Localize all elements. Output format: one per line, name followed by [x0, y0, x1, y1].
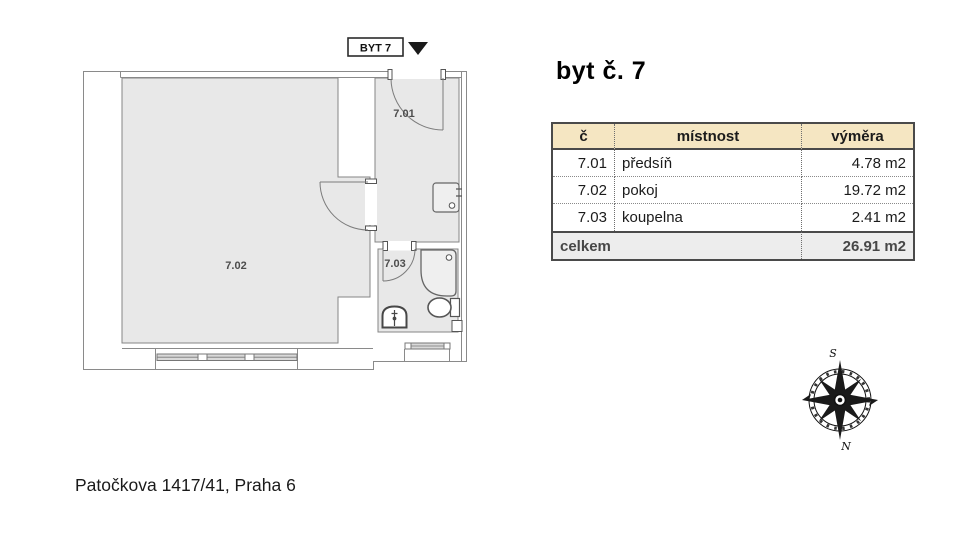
table-total-row: celkem 26.91 m2 [553, 231, 913, 259]
total-area: 26.91 m2 [802, 231, 913, 259]
page-title: byt č. 7 [556, 57, 646, 86]
cell-room-name: předsíň [615, 150, 802, 177]
room-predsin [375, 78, 459, 242]
cell-room-number: 7.02 [553, 177, 615, 204]
cell-room-number: 7.03 [553, 204, 615, 231]
table-row: 7.01 předsíň 4.78 m2 [553, 150, 913, 177]
cell-room-name: koupelna [615, 204, 802, 231]
room-label-702: 7.02 [225, 260, 246, 272]
address-text: Patočkova 1417/41, Praha 6 [75, 475, 296, 496]
flat-marker-triangle [408, 42, 428, 55]
toilet [428, 298, 460, 317]
shower [421, 250, 456, 296]
cell-room-area: 19.72 m2 [802, 177, 913, 204]
room-label-703: 7.03 [384, 258, 405, 270]
cell-room-area: 2.41 m2 [802, 204, 913, 231]
window-koupelna [405, 343, 450, 349]
flat-marker: BYT 7 [348, 38, 428, 56]
window-pokoj [157, 354, 297, 361]
table-row: 7.02 pokoj 19.72 m2 [553, 177, 913, 204]
compass-rose: S N [798, 344, 882, 456]
compass-letter-north: N [840, 440, 851, 453]
compass-letter-south: S [829, 347, 837, 360]
table-header-area: výměra [802, 124, 913, 150]
room-pokoj [122, 78, 370, 343]
flat-marker-label: BYT 7 [360, 43, 391, 55]
bath-basin [383, 307, 407, 328]
hall-basin [433, 183, 462, 212]
floor-plan: 7.01 7.02 7.03 BYT 7 [0, 0, 500, 470]
total-label: celkem [553, 231, 802, 259]
cell-room-name: pokoj [615, 177, 802, 204]
cell-room-number: 7.01 [553, 150, 615, 177]
area-table: č místnost výměra 7.01 předsíň 4.78 m2 7… [551, 122, 915, 261]
table-row: 7.03 koupelna 2.41 m2 [553, 204, 913, 231]
table-header-number: č [553, 124, 615, 150]
page: 7.01 7.02 7.03 BYT 7 byt č. 7 č místnost… [0, 0, 960, 540]
corner-unit [452, 321, 462, 332]
cell-room-area: 4.78 m2 [802, 150, 913, 177]
table-header-room: místnost [615, 124, 802, 150]
room-label-701: 7.01 [393, 108, 414, 120]
table-header-row: č místnost výměra [553, 124, 913, 150]
